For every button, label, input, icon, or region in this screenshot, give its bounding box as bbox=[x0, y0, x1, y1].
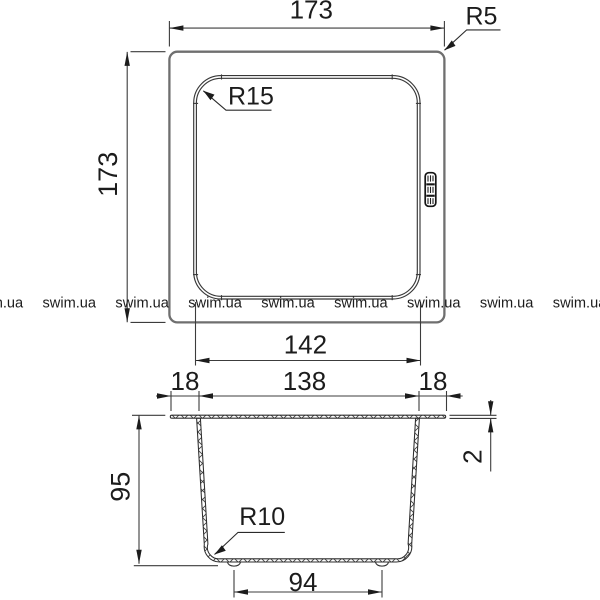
svg-text:R15: R15 bbox=[228, 83, 274, 111]
svg-text:swim.ua: swim.ua bbox=[553, 296, 600, 312]
svg-text:18: 18 bbox=[171, 366, 200, 396]
svg-text:95: 95 bbox=[106, 472, 136, 502]
svg-text:142: 142 bbox=[284, 330, 327, 360]
svg-text:18: 18 bbox=[419, 366, 448, 396]
svg-text:173: 173 bbox=[93, 152, 123, 197]
svg-text:94: 94 bbox=[289, 567, 318, 597]
svg-text:R10: R10 bbox=[239, 503, 285, 531]
svg-text:swim.ua: swim.ua bbox=[115, 296, 169, 312]
svg-text:swim.ua: swim.ua bbox=[334, 296, 388, 312]
svg-text:138: 138 bbox=[283, 366, 326, 396]
svg-text:swim.ua: swim.ua bbox=[407, 296, 461, 312]
svg-text:swim.ua: swim.ua bbox=[480, 296, 534, 312]
svg-text:2: 2 bbox=[458, 449, 488, 463]
svg-text:swim.ua: swim.ua bbox=[188, 296, 242, 312]
svg-text:swim.ua: swim.ua bbox=[43, 296, 97, 312]
svg-text:R5: R5 bbox=[466, 3, 498, 31]
svg-text:swim.ua: swim.ua bbox=[0, 296, 24, 312]
svg-text:173: 173 bbox=[290, 0, 333, 25]
svg-text:swim.ua: swim.ua bbox=[261, 296, 315, 312]
